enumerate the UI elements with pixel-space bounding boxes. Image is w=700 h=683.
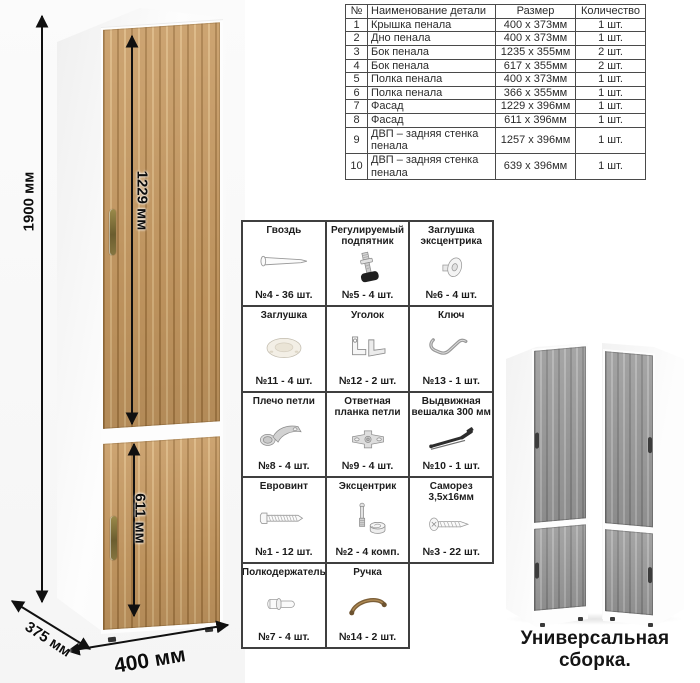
table-row: 8 Фасад 611 х 396мм 1 шт. xyxy=(346,114,646,128)
hardware-item: Выдвижная вешалка 300 мм №10 - 1 шт. xyxy=(410,393,494,478)
right-variant-front xyxy=(603,349,655,626)
width-dimension-label: 400 мм xyxy=(87,639,213,683)
upper-door-handle xyxy=(109,209,116,255)
table-row: 6 Полка пенала 366 х 355мм 1 шт. xyxy=(346,86,646,100)
hardware-item: Эксцентрик №2 - 4 комп. xyxy=(327,478,411,563)
hardware-item-qty: №6 - 4 шт. xyxy=(425,289,477,301)
pullout-hanger-icon xyxy=(411,418,491,460)
cabinet-illustration: 1900 мм 1229 мм 611 мм 400 мм 375 мм xyxy=(0,0,245,683)
left-variant-upper-handle xyxy=(535,432,539,448)
hardware-item: Ручка №14 - 2 шт. xyxy=(327,564,411,649)
handle-icon xyxy=(328,578,408,631)
cabinet-lower-door xyxy=(103,436,220,630)
hardware-item-label: Эксцентрик xyxy=(339,481,396,492)
hardware-item: Саморез 3,5х16мм №3 - 22 шт. xyxy=(410,478,494,563)
hex-key-icon xyxy=(411,322,491,375)
part-qty: 1 шт. xyxy=(576,154,646,180)
hardware-item: Ключ №13 - 1 шт. xyxy=(410,307,494,392)
part-number: 1 xyxy=(346,18,368,32)
part-size: 1229 х 396мм xyxy=(496,100,576,114)
table-row: 5 Полка пенала 400 х 373мм 1 шт. xyxy=(346,73,646,87)
part-number: 9 xyxy=(346,127,368,153)
hardware-item-qty: №1 - 12 шт. xyxy=(255,546,312,558)
nail-icon xyxy=(244,236,324,289)
hardware-item: Полкодержатель №7 - 4 шт. xyxy=(243,564,327,649)
part-name: Полка пенала xyxy=(368,73,496,87)
part-size: 366 х 355мм xyxy=(496,86,576,100)
part-name: Бок пенала xyxy=(368,59,496,73)
hardware-item: Регулируемый подпятник №5 - 4 шт. xyxy=(327,222,411,307)
shelf-pin-icon xyxy=(244,578,324,631)
part-qty: 1 шт. xyxy=(576,114,646,128)
part-size: 1257 х 396мм xyxy=(496,127,576,153)
table-row: 2 Дно пенала 400 х 373мм 1 шт. xyxy=(346,32,646,46)
part-name: Фасад xyxy=(368,100,496,114)
part-size: 611 х 396мм xyxy=(496,114,576,128)
part-number: 7 xyxy=(346,100,368,114)
hardware-item: Евровинт №1 - 12 шт. xyxy=(243,478,327,563)
hardware-item-qty: №2 - 4 комп. xyxy=(336,546,400,558)
hardware-item: Плечо петли №8 - 4 шт. xyxy=(243,393,327,478)
hardware-item-qty: №9 - 4 шт. xyxy=(342,460,394,472)
cabinet-foot xyxy=(108,637,116,643)
table-row: 1 Крышка пенала 400 х 373мм 1 шт. xyxy=(346,18,646,32)
hardware-item-qty: №10 - 1 шт. xyxy=(423,460,480,472)
lower-facade-dimension-label: 611 мм xyxy=(132,479,149,559)
part-number: 6 xyxy=(346,86,368,100)
part-qty: 2 шт. xyxy=(576,59,646,73)
col-header-size: Размер xyxy=(496,5,576,19)
hardware-item-label: Ключ xyxy=(438,310,464,321)
right-variant-lower-door xyxy=(605,529,653,615)
col-header-name: Наименование детали xyxy=(368,5,496,19)
part-qty: 1 шт. xyxy=(576,73,646,87)
hardware-item: Заглушка №11 - 4 шт. xyxy=(243,307,327,392)
col-header-number: № xyxy=(346,5,368,19)
left-variant-upper-door xyxy=(534,346,586,523)
part-qty: 1 шт. xyxy=(576,86,646,100)
part-number: 4 xyxy=(346,59,368,73)
left-variant-lower-handle xyxy=(535,562,539,578)
euro-screw-icon xyxy=(244,492,324,545)
hardware-item-qty: №13 - 1 шт. xyxy=(423,375,480,387)
parts-table: № Наименование детали Размер Количество … xyxy=(345,4,646,180)
part-size: 639 х 396мм xyxy=(496,154,576,180)
hardware-item: Ответная планка петли №9 - 4 шт. xyxy=(327,393,411,478)
hardware-item-label: Выдвижная вешалка 300 мм xyxy=(411,396,491,418)
hinge-plate-icon xyxy=(328,418,408,460)
part-number: 10 xyxy=(346,154,368,180)
table-row: 3 Бок пенала 1235 х 355мм 2 шт. xyxy=(346,45,646,59)
left-variant-front xyxy=(532,344,588,621)
table-row: 7 Фасад 1229 х 396мм 1 шт. xyxy=(346,100,646,114)
hardware-item-label: Саморез 3,5х16мм xyxy=(411,481,491,503)
part-name: ДВП – задняя стенка пенала xyxy=(368,127,496,153)
part-number: 8 xyxy=(346,114,368,128)
hardware-item-label: Заглушка xyxy=(261,310,307,321)
lower-door-handle xyxy=(110,516,117,560)
universal-assembly-illustration: Универсальная сборка. xyxy=(490,335,700,675)
hardware-item-label: Регулируемый подпятник xyxy=(328,225,408,247)
right-variant-foot xyxy=(648,623,653,627)
hardware-item: Уголок №12 - 2 шт. xyxy=(327,307,411,392)
hardware-item-label: Ответная планка петли xyxy=(328,396,408,418)
part-number: 3 xyxy=(346,45,368,59)
right-variant-foot xyxy=(610,617,615,621)
part-qty: 1 шт. xyxy=(576,127,646,153)
left-variant-foot xyxy=(540,623,545,627)
part-name: Полка пенала xyxy=(368,86,496,100)
universal-assembly-caption: Универсальная сборка. xyxy=(490,628,700,672)
part-name: Фасад xyxy=(368,114,496,128)
cam-cover-icon xyxy=(411,247,491,289)
hardware-item-qty: №3 - 22 шт. xyxy=(423,546,480,558)
cabinet-front-face xyxy=(101,19,223,634)
part-name: Дно пенала xyxy=(368,32,496,46)
hardware-item-label: Заглушка эксцентрика xyxy=(411,225,491,247)
part-size: 617 х 355мм xyxy=(496,59,576,73)
hardware-item-label: Плечо петли xyxy=(253,396,315,407)
hardware-item-qty: №14 - 2 шт. xyxy=(339,631,396,643)
hardware-item-label: Евровинт xyxy=(260,481,308,492)
plug-cap-icon xyxy=(244,322,324,375)
table-row: 4 Бок пенала 617 х 355мм 2 шт. xyxy=(346,59,646,73)
corner-bracket-icon xyxy=(328,322,408,375)
assembly-sheet: 1900 мм 1229 мм 611 мм 400 мм 375 мм № Н… xyxy=(0,0,700,683)
part-size: 400 х 373мм xyxy=(496,73,576,87)
part-qty: 2 шт. xyxy=(576,45,646,59)
hinge-arm-icon xyxy=(244,407,324,460)
hardware-item-qty: №5 - 4 шт. xyxy=(342,289,394,301)
hardware-item-qty: №12 - 2 шт. xyxy=(339,375,396,387)
right-variant-upper-handle xyxy=(648,437,652,453)
hardware-item-qty: №4 - 36 шт. xyxy=(255,289,312,301)
hardware-item-label: Полкодержатель xyxy=(243,567,326,578)
adjustable-foot-icon xyxy=(328,247,408,289)
left-variant-foot xyxy=(578,617,583,621)
hardware-item-label: Ручка xyxy=(353,567,382,578)
part-qty: 1 шт. xyxy=(576,100,646,114)
hardware-item-label: Уголок xyxy=(351,310,384,321)
part-name: Крышка пенала xyxy=(368,18,496,32)
upper-facade-dimension-label: 1229 мм xyxy=(134,151,151,251)
eccentric-cam-icon xyxy=(328,492,408,545)
right-variant-upper-door xyxy=(605,351,653,527)
depth-dimension-label: 375 мм xyxy=(5,607,91,671)
hardware-item-qty: №8 - 4 шт. xyxy=(258,460,310,472)
left-variant-lower-door xyxy=(534,524,586,611)
hardware-item: Гвоздь №4 - 36 шт. xyxy=(243,222,327,307)
part-name: Бок пенала xyxy=(368,45,496,59)
hardware-grid: Гвоздь №4 - 36 шт. Регулируемый подпятни… xyxy=(241,220,494,649)
hardware-item: Заглушка эксцентрика №6 - 4 шт. xyxy=(410,222,494,307)
table-row: 9 ДВП – задняя стенка пенала 1257 х 396м… xyxy=(346,127,646,153)
hardware-item-qty: №11 - 4 шт. xyxy=(255,375,312,387)
self-tapping-screw-icon xyxy=(411,504,491,546)
table-row: 10 ДВП – задняя стенка пенала 639 х 396м… xyxy=(346,154,646,180)
part-size: 1235 х 355мм xyxy=(496,45,576,59)
parts-table-header-row: № Наименование детали Размер Количество xyxy=(346,5,646,19)
cabinet-foot xyxy=(205,627,213,633)
part-name: ДВП – задняя стенка пенала xyxy=(368,154,496,180)
part-number: 5 xyxy=(346,73,368,87)
hardware-item-qty: №7 - 4 шт. xyxy=(258,631,310,643)
part-number: 2 xyxy=(346,32,368,46)
part-qty: 1 шт. xyxy=(576,32,646,46)
part-size: 400 х 373мм xyxy=(496,18,576,32)
cabinet-upper-door xyxy=(103,22,220,429)
part-qty: 1 шт. xyxy=(576,18,646,32)
col-header-qty: Количество xyxy=(576,5,646,19)
part-size: 400 х 373мм xyxy=(496,32,576,46)
hardware-item-label: Гвоздь xyxy=(266,225,301,236)
height-dimension-label: 1900 мм xyxy=(21,152,38,252)
right-variant-lower-handle xyxy=(648,567,652,583)
